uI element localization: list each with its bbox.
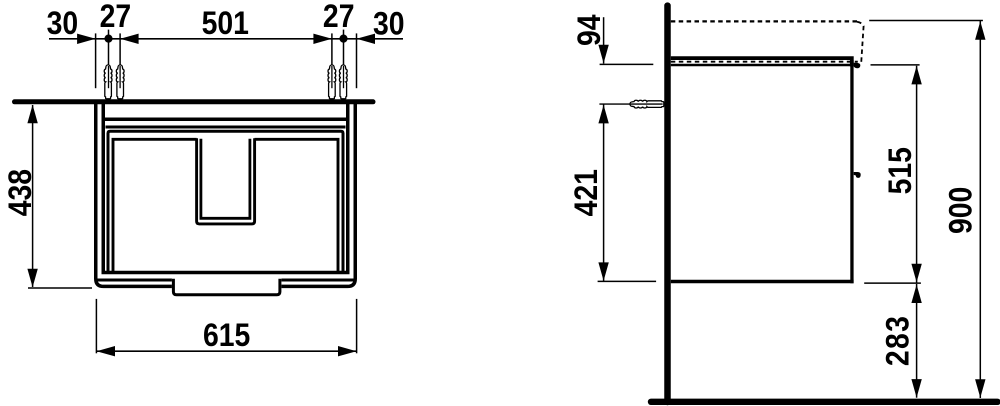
svg-text:615: 615 — [203, 319, 250, 354]
svg-text:30: 30 — [373, 7, 405, 42]
svg-text:27: 27 — [323, 0, 355, 34]
svg-text:900: 900 — [944, 187, 979, 234]
svg-text:421: 421 — [569, 169, 604, 216]
svg-text:27: 27 — [100, 0, 132, 34]
svg-text:515: 515 — [883, 147, 918, 194]
svg-text:94: 94 — [572, 14, 607, 46]
svg-text:438: 438 — [3, 169, 38, 216]
svg-text:501: 501 — [202, 7, 249, 42]
svg-text:30: 30 — [47, 6, 79, 41]
svg-text:283: 283 — [881, 315, 916, 367]
